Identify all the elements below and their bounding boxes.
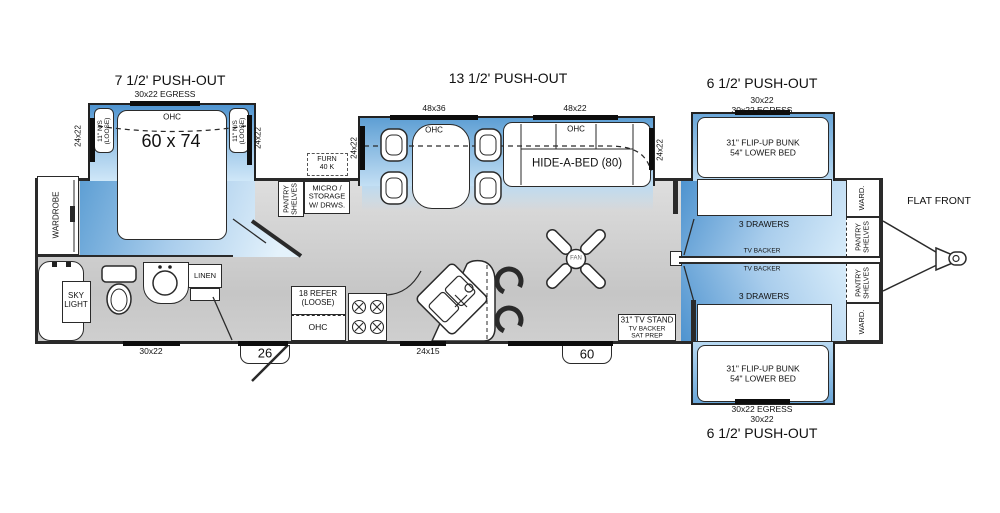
label-dinette-ohc: OHC [425, 127, 443, 136]
window-sofa-top [533, 115, 618, 120]
furnace-line2: 40 K [320, 164, 334, 171]
rv-floorplan: 7 1/2' PUSH-OUT 30x22 EGRESS OHC 60 x 74… [0, 0, 1000, 513]
hitch [883, 221, 966, 291]
wall-right [880, 178, 883, 344]
bunk-bottom-line1: 31" FLIP-UP BUNK [726, 363, 799, 373]
label-tv-backer-bottom: TV BACKER [744, 265, 781, 272]
dinette-table [412, 124, 470, 209]
ns-left-line2: (LOOSE) [104, 118, 111, 145]
label-bedroom-ohc: OHC [163, 114, 181, 123]
label-window-kitchen: 24x15 [416, 347, 439, 357]
ns-right-line1: 11" N/S [232, 120, 239, 142]
label-tv-stand: 31" TV STAND TV BACKER SAT PREP [621, 316, 674, 339]
ns-right-line2: (LOOSE) [239, 118, 246, 145]
label-flat-front: FLAT FRONT [907, 196, 971, 208]
tv-line2: TV BACKER [629, 325, 666, 332]
label-pantry-kitchen: PANTRY SHELVES [283, 183, 298, 215]
window-bedroom-egress [130, 101, 200, 106]
label-bunk-top-drawers: 3 DRAWERS [739, 220, 789, 230]
label-fan: FAN [570, 256, 582, 263]
label-window-bath: 30x22 [139, 347, 162, 357]
label-nightstand-left: 11" N/S (LOOSE) [97, 118, 111, 145]
bunk-top-lower-bed [697, 179, 832, 216]
wall-bath [38, 255, 233, 257]
label-tv-backer-top: TV BACKER [744, 247, 781, 254]
linen-lower-cabinet [190, 288, 220, 301]
window-bedroom-left [90, 118, 95, 162]
label-wardrobe: WARDROBE [53, 192, 62, 239]
label-kitchen-ohc: OHC [309, 323, 328, 333]
label-nightstand-right: 11" N/S (LOOSE) [232, 118, 246, 145]
label-refrigerator: 18 REFER (LOOSE) [299, 290, 337, 308]
label-main-door: 60 [580, 348, 594, 363]
window-sofa-right [649, 128, 654, 170]
pantry-kitchen-line1: PANTRY [283, 185, 290, 213]
label-bunk-bottom-drawers: 3 DRAWERS [739, 292, 789, 302]
pantry-kitchen-line2: SHELVES [291, 183, 298, 215]
bed [117, 110, 227, 240]
label-bunk-top-egress: 30x22 EGRESS [732, 106, 793, 116]
bunk-top-line1: 31" FLIP-UP BUNK [726, 137, 799, 147]
bunk-bottom-line2: 54" LOWER BED [730, 373, 796, 383]
skylight-line1: SKY [68, 291, 84, 300]
label-window-dinette: 48x36 [422, 104, 445, 114]
label-pantry-bottom: PANTRY SHELVES [855, 267, 870, 299]
range [348, 293, 387, 341]
micro-line3: W/ DRWS. [309, 200, 345, 209]
pantry-top-line1: PANTRY [855, 223, 862, 251]
main-door-bar [508, 341, 613, 346]
title-living-pushout: 13 1/2' PUSH-OUT [449, 71, 568, 87]
refer-line1: 18 REFER [299, 289, 337, 298]
label-pantry-top: PANTRY SHELVES [855, 221, 870, 253]
label-micro-storage: MICRO / STORAGE W/ DRWS. [309, 184, 346, 209]
pantry-top-line2: SHELVES [863, 221, 870, 253]
furnace-line1: FURN [317, 156, 336, 163]
label-bunk-bottom-bed: 31" FLIP-UP BUNK 54" LOWER BED [726, 364, 799, 383]
skylight-line2: LIGHT [64, 300, 88, 309]
label-bed-size: 60 x 74 [141, 131, 200, 151]
tv-line3: SAT PREP [631, 332, 663, 339]
ns-left-line1: 11" N/S [97, 120, 104, 142]
refer-line2: (LOOSE) [302, 298, 335, 307]
title-bedroom-pushout: 7 1/2' PUSH-OUT [115, 73, 226, 89]
pantry-bottom-line1: PANTRY [855, 269, 862, 297]
title-bunk-bottom-pushout: 6 1/2' PUSH-OUT [707, 426, 818, 442]
tv-line1: 31" TV STAND [621, 315, 674, 324]
label-sofa-ohc: OHC [567, 126, 585, 135]
sink-vanity [143, 262, 189, 304]
window-bedroom-right [247, 115, 252, 165]
title-bunk-top-pushout: 6 1/2' PUSH-OUT [707, 76, 818, 92]
label-bunk-top-bed: 31" FLIP-UP BUNK 54" LOWER BED [726, 138, 799, 157]
wall-bunk-stub-top [673, 181, 678, 214]
label-window-sofa: 48x22 [563, 104, 586, 114]
label-window-bedroom-right: 24x22 [255, 127, 264, 149]
window-dinette-left [360, 126, 365, 170]
label-ward-bottom: WARD. [858, 310, 866, 335]
label-entry-door: 26 [258, 347, 272, 362]
label-bunk-bottom-window: 30x22 [750, 415, 773, 425]
label-skylight: SKY LIGHT [64, 292, 88, 310]
label-sofa: HIDE-A-BED (80) [532, 158, 622, 171]
label-furnace: FURN 40 K [317, 156, 336, 172]
pantry-bottom-line2: SHELVES [863, 267, 870, 299]
label-window-bedroom-left: 24x22 [75, 125, 84, 147]
label-window-living-left: 24x22 [351, 137, 360, 159]
label-linen: LINEN [194, 272, 216, 280]
wall-bunk-stub-bottom [691, 300, 696, 341]
label-ward-top: WARD. [858, 186, 866, 211]
label-bedroom-egress: 30x22 EGRESS [135, 90, 196, 100]
bunk-top-line2: 54" LOWER BED [730, 147, 796, 157]
label-window-living-right: 24x22 [657, 139, 666, 161]
bunk-bottom-lower-bed [697, 304, 832, 342]
window-dinette-top [390, 115, 478, 120]
